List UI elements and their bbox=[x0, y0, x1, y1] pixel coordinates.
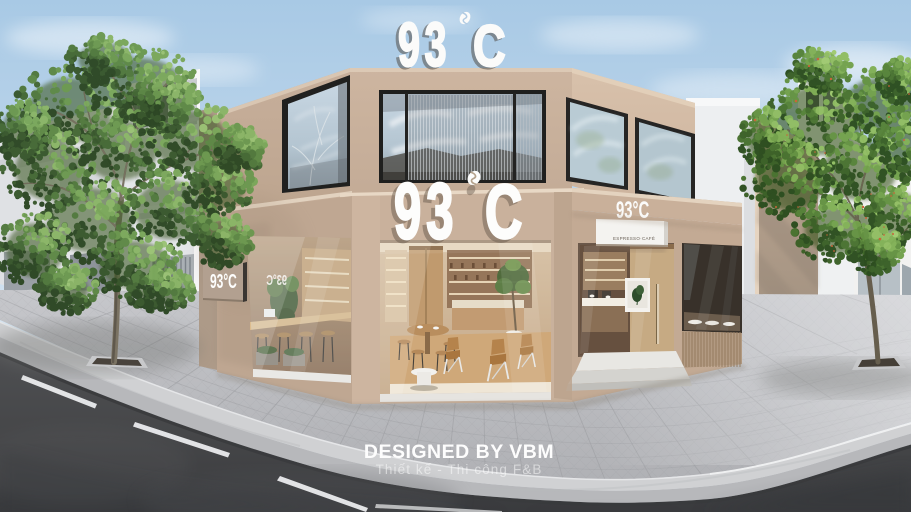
svg-text:ESPRESSO·CAFÉ: ESPRESSO·CAFÉ bbox=[613, 235, 655, 241]
svg-text:C: C bbox=[473, 15, 506, 80]
svg-text:93: 93 bbox=[394, 167, 458, 255]
svg-text:C: C bbox=[485, 169, 522, 254]
svg-text:93: 93 bbox=[398, 11, 451, 80]
svg-text:93°C: 93°C bbox=[266, 272, 287, 289]
svg-text:93°C: 93°C bbox=[210, 271, 237, 293]
